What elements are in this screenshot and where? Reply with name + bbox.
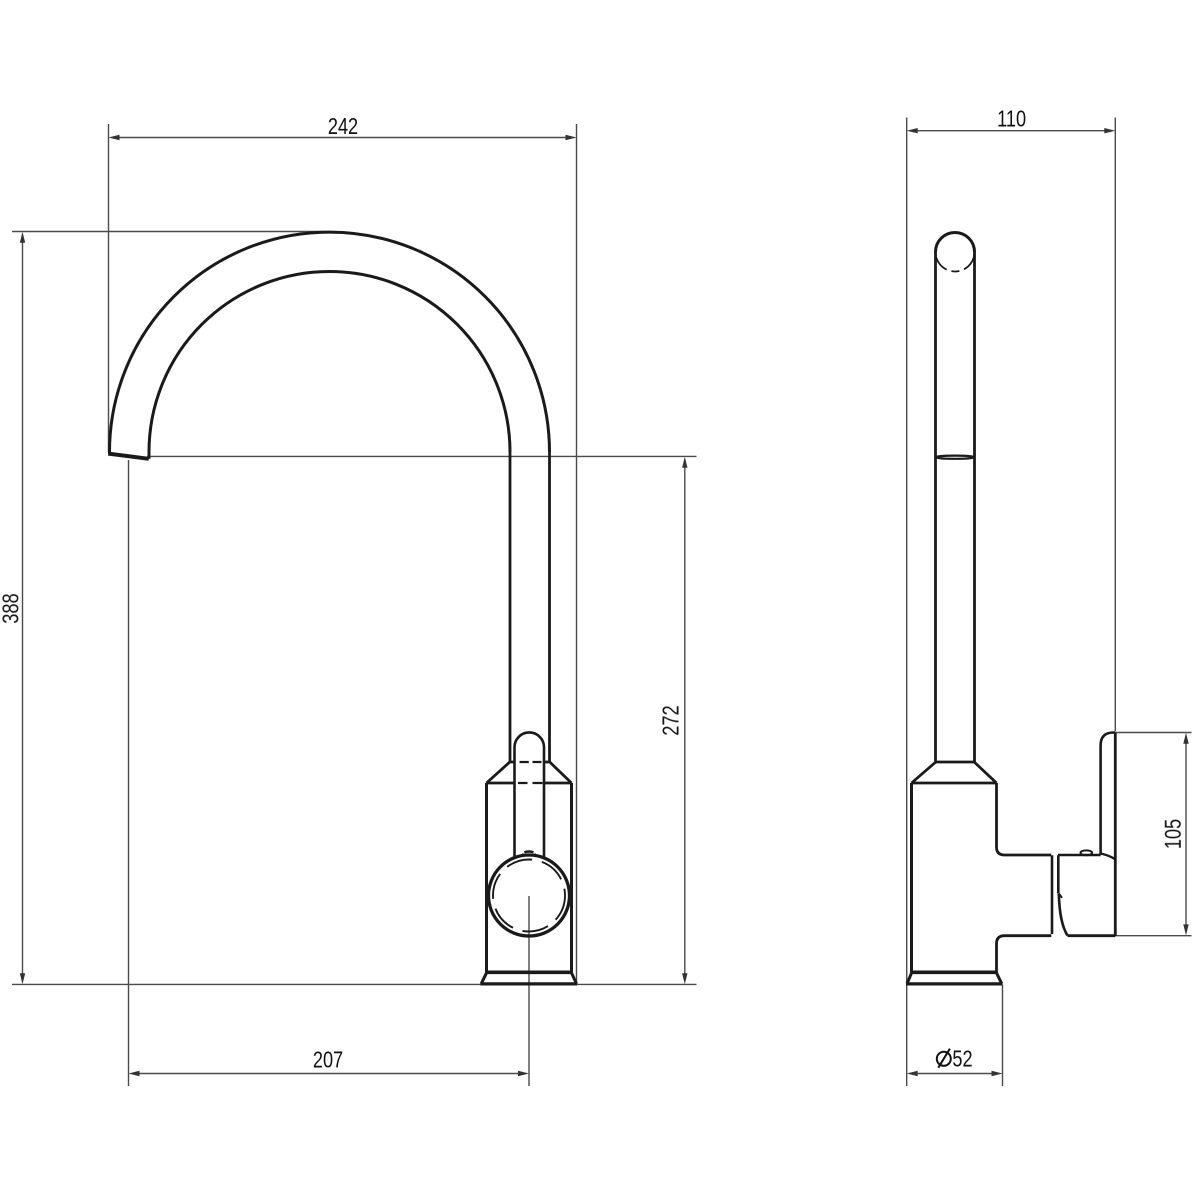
svg-text:388: 388	[0, 593, 24, 623]
svg-text:207: 207	[313, 1048, 343, 1074]
svg-text:272: 272	[659, 705, 685, 735]
svg-text:110: 110	[997, 107, 1026, 133]
svg-text:242: 242	[328, 114, 358, 140]
svg-text:105: 105	[1161, 819, 1187, 849]
svg-text:52: 52	[952, 1047, 972, 1073]
